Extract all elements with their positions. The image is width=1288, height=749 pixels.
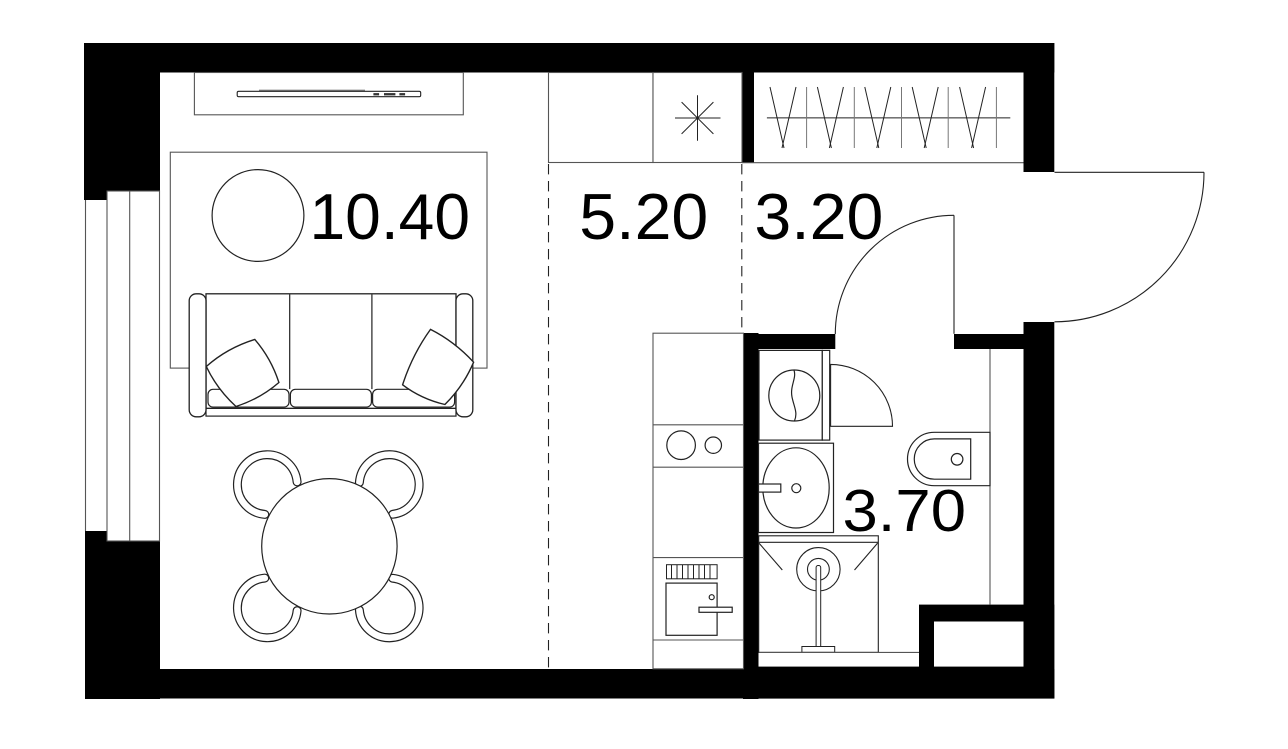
svg-text:3.70: 3.70	[843, 478, 967, 544]
svg-text:5.20: 5.20	[579, 180, 708, 253]
svg-text:10.40: 10.40	[310, 180, 471, 253]
svg-text:3.20: 3.20	[754, 180, 883, 253]
